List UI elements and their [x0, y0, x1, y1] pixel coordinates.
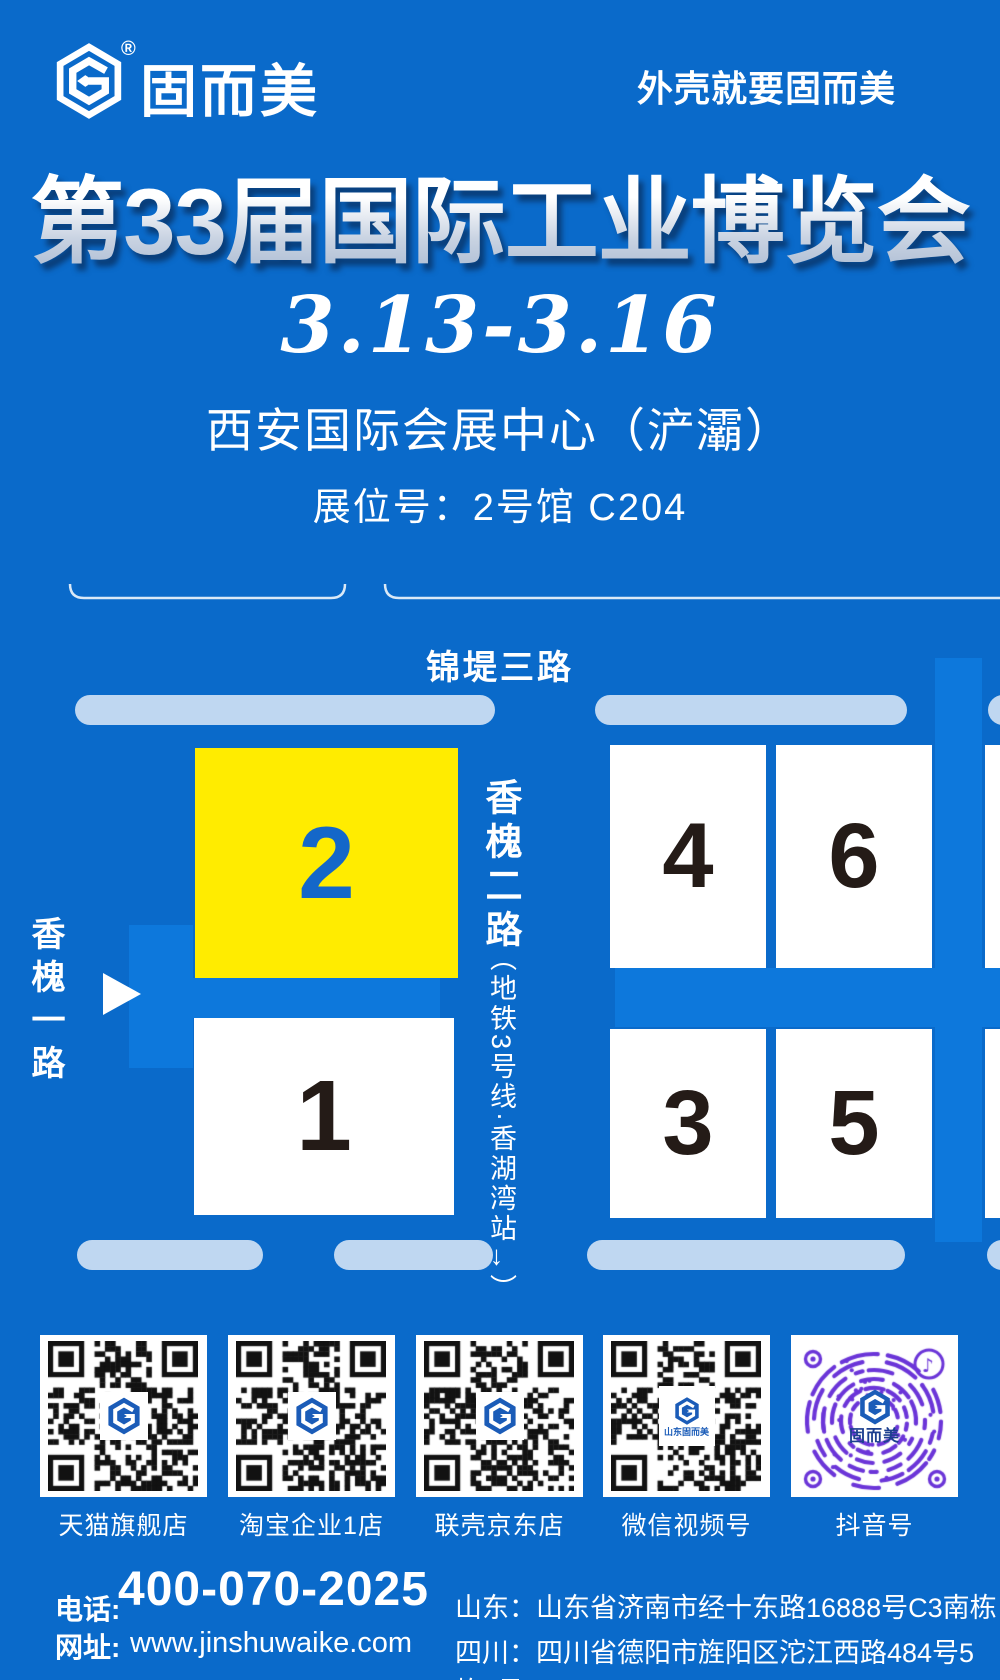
website-label: 网址:	[55, 1626, 120, 1666]
brand-hexagon-logo-icon	[104, 1395, 144, 1437]
brand-tagline: 外壳就要固而美	[637, 60, 896, 112]
qr-center-text: 山东固而美	[664, 1427, 709, 1438]
brand-hexagon-logo-icon	[480, 1395, 520, 1437]
map-road-horizontal-left	[193, 978, 440, 1018]
map-entry-arrow-icon	[103, 973, 141, 1015]
map-metro-note: （地铁3号线·香湖湾站→）	[487, 944, 514, 1304]
qr-label-taobao: 淘宝企业1店	[228, 1506, 395, 1542]
qr-code-jd	[416, 1335, 583, 1497]
map-road-label-top: 锦堤三路	[0, 640, 1000, 689]
map-curb-bar	[334, 1240, 493, 1270]
map-hall-partial-bottom	[985, 1029, 1000, 1218]
map-hall-2-highlighted: 2	[195, 748, 458, 978]
map-curb-bar	[595, 695, 907, 725]
map-curb-bar	[75, 695, 495, 725]
hall-number: 3	[662, 1071, 713, 1176]
qr-label-jd: 联壳京东店	[416, 1506, 583, 1542]
phone-number: 400-070-2025	[118, 1562, 429, 1617]
address-sichuan: 四川：四川省德阳市旌阳区沱江西路484号5栋4号	[455, 1631, 1000, 1680]
hall-number: 1	[296, 1059, 352, 1174]
expo-poster: ® 固而美 外壳就要固而美 第33届国际工业博览会 3.13-3.16 西安国际…	[0, 0, 1000, 1680]
hall-number: 2	[298, 805, 355, 922]
booth-number: 展位号：2号馆 C204	[0, 476, 1000, 531]
qr-center-logo	[100, 1392, 148, 1440]
brand-hexagon-logo-icon	[292, 1395, 332, 1437]
map-hall-3: 3	[610, 1029, 766, 1218]
map-hall-6: 6	[776, 745, 932, 968]
hall-number: 4	[662, 804, 713, 909]
address-shandong: 山东：山东省济南市经十东路16888号C3南栋	[455, 1586, 997, 1625]
map-divider-lines	[0, 580, 1000, 606]
hall-number: 6	[828, 804, 879, 909]
hall-number: 5	[828, 1071, 879, 1176]
expo-dates: 3.13-3.16	[0, 280, 1000, 371]
phone-label: 电话:	[55, 1588, 120, 1628]
qr-code-tmall	[40, 1335, 207, 1497]
map-road-horizontal-right	[615, 968, 1000, 1027]
map-road-vertical-right	[935, 658, 982, 1242]
qr-label-wechat: 微信视频号	[603, 1506, 770, 1542]
qr-label-tmall: 天猫旗舰店	[40, 1506, 207, 1542]
brand-hexagon-logo-icon	[856, 1387, 894, 1427]
map-hall-4: 4	[610, 745, 766, 968]
douyin-brand-text: 固而美	[849, 1428, 900, 1446]
qr-center-logo: 山东固而美	[659, 1386, 715, 1446]
map-road-label-left: 香槐一路	[28, 916, 62, 1088]
map-curb-bar	[987, 1240, 1000, 1270]
registered-mark: ®	[121, 38, 136, 61]
brand-hexagon-logo-icon	[52, 40, 126, 122]
brand-name: 固而美	[140, 46, 320, 128]
map-curb-bar	[587, 1240, 905, 1270]
map-hall-1: 1	[194, 1018, 454, 1215]
qr-code-wechat-channel: 山东固而美	[603, 1335, 770, 1497]
map-curb-bar	[77, 1240, 263, 1270]
map-hall-5: 5	[776, 1029, 932, 1218]
qr-center-logo: 固而美	[836, 1377, 914, 1455]
map-road-label-middle: 香槐二路	[482, 778, 519, 954]
expo-title: 第33届国际工业博览会	[0, 146, 1000, 282]
map-hall-partial-top	[985, 745, 1000, 968]
qr-code-taobao	[228, 1335, 395, 1497]
qr-center-logo	[476, 1392, 524, 1440]
qr-center-logo	[288, 1392, 336, 1440]
qr-label-douyin: 抖音号	[791, 1506, 958, 1542]
map-curb-bar	[988, 695, 1000, 725]
website-url: www.jinshuwaike.com	[130, 1627, 412, 1660]
expo-venue: 西安国际会展中心（浐灞）	[0, 392, 1000, 461]
qr-code-douyin: 固而美	[791, 1335, 958, 1497]
brand-hexagon-logo-icon	[672, 1395, 702, 1427]
